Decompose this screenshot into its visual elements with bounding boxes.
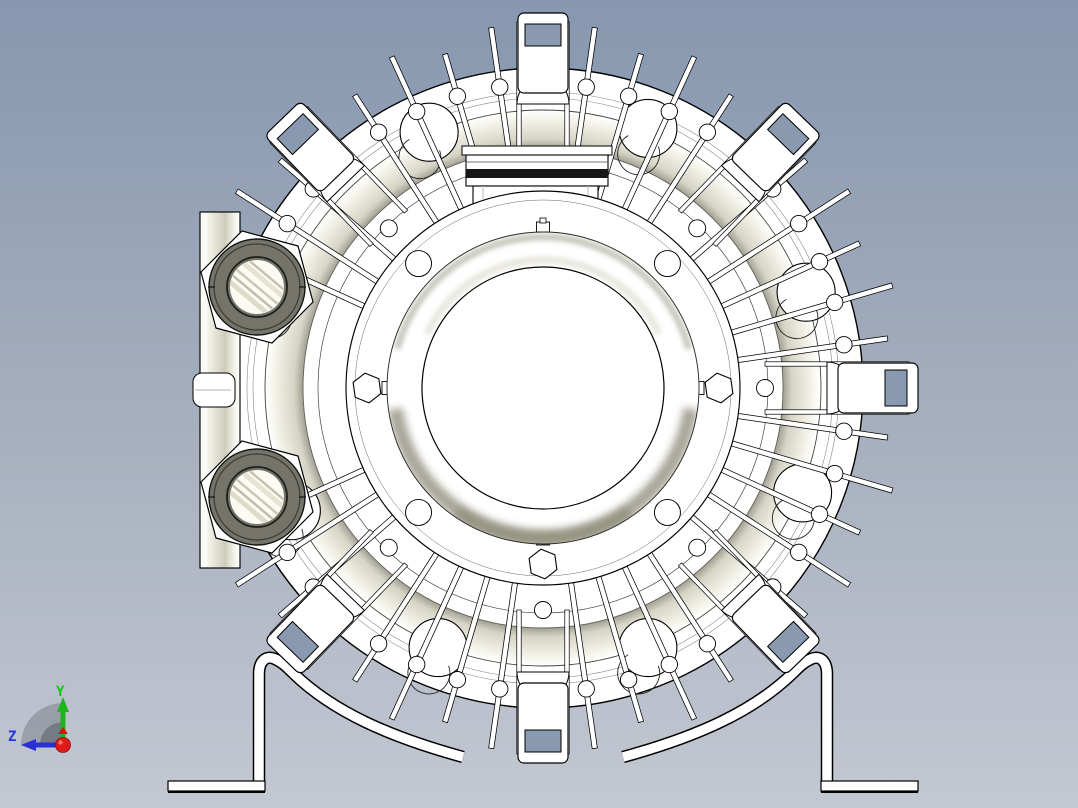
fin-boss — [578, 79, 594, 95]
shaft-cover-face — [422, 267, 664, 509]
fin-boss — [620, 88, 636, 104]
fin-boss — [791, 544, 807, 560]
fin-boss — [836, 423, 852, 439]
top-block-ledge — [462, 146, 612, 155]
top-block-gasket — [466, 169, 608, 178]
flange-bolt-hole — [406, 251, 432, 277]
model-side-channel-blower — [0, 0, 1078, 808]
fin-boss — [578, 681, 594, 697]
tab-axis-boss — [535, 602, 552, 619]
x-axis-ball-highlight — [58, 740, 62, 744]
cad-viewport[interactable]: Y Z — [0, 0, 1078, 808]
fin-boss — [661, 656, 677, 672]
flange-bolt-hole — [654, 499, 680, 525]
flange-bolt-hole — [654, 251, 680, 277]
fin-boss — [279, 544, 295, 560]
fin-boss — [449, 671, 465, 687]
fin-boss — [836, 337, 852, 353]
fin-boss — [811, 506, 827, 522]
tab-hole — [885, 370, 907, 406]
flange-bolt-hole — [406, 499, 432, 525]
fin-boss — [492, 681, 508, 697]
fin-boss — [449, 88, 465, 104]
fin-boss — [826, 294, 842, 310]
fin-boss — [811, 253, 827, 269]
tab-hole — [525, 730, 561, 752]
fin-boss — [620, 671, 636, 687]
orientation-triad[interactable]: Y Z — [0, 678, 140, 808]
fin-boss — [279, 215, 295, 231]
fin-boss — [370, 636, 386, 652]
tab-axis-boss — [757, 380, 774, 397]
fin-boss — [699, 636, 715, 652]
fin-boss — [699, 124, 715, 140]
fin-boss — [370, 124, 386, 140]
flange-top-stud-cap — [540, 218, 546, 223]
fin-boss — [408, 656, 424, 672]
foot-base — [168, 781, 265, 791]
z-axis-label: Z — [8, 729, 16, 745]
fin-boss — [791, 215, 807, 231]
fin-boss — [826, 465, 842, 481]
fin-boss — [492, 79, 508, 95]
fin-boss — [408, 103, 424, 119]
fin-boss — [661, 103, 677, 119]
foot-base — [821, 781, 918, 791]
tab-hole — [525, 24, 561, 46]
y-axis-label: Y — [56, 684, 65, 700]
x-axis-ball[interactable] — [56, 738, 71, 753]
flange-top-stud — [537, 222, 550, 232]
